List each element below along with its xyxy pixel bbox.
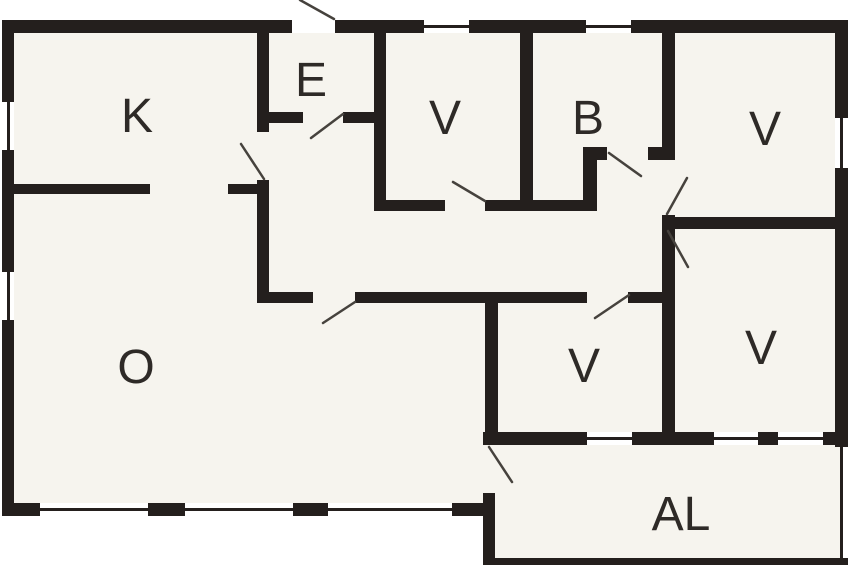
al-door-swing — [489, 447, 512, 482]
room-label-v4: V — [745, 325, 777, 373]
o-door-swing — [323, 302, 355, 323]
room-label-v2: V — [749, 106, 781, 154]
room-label-e: E — [295, 57, 327, 105]
v3-door-swing — [595, 295, 629, 318]
room-label-k: K — [121, 93, 153, 141]
v1-door-swing — [453, 182, 485, 201]
room-label-al: AL — [652, 491, 711, 539]
door-swing-layer — [0, 0, 848, 565]
v4-door-swing — [668, 231, 688, 267]
room-label-o: O — [117, 344, 154, 392]
entrance-door-swing — [300, 0, 334, 19]
room-label-b: B — [572, 95, 604, 143]
b-door-swing — [609, 153, 641, 176]
k-door-swing — [241, 144, 264, 179]
room-label-v1: V — [429, 95, 461, 143]
e-door-swing — [311, 114, 343, 138]
room-label-v3: V — [568, 343, 600, 391]
v2-door-swing — [667, 178, 687, 214]
floor-plan: KEVBVOVVAL — [0, 0, 848, 565]
